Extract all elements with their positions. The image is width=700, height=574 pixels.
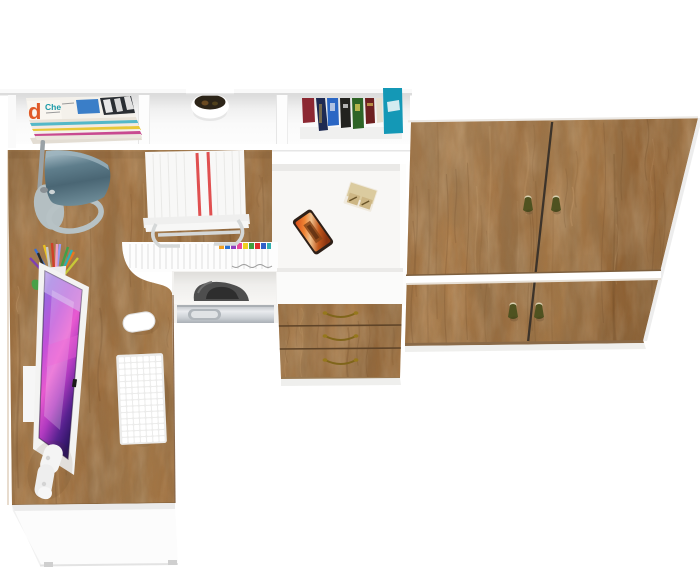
svg-text:Che: Che bbox=[45, 102, 61, 112]
